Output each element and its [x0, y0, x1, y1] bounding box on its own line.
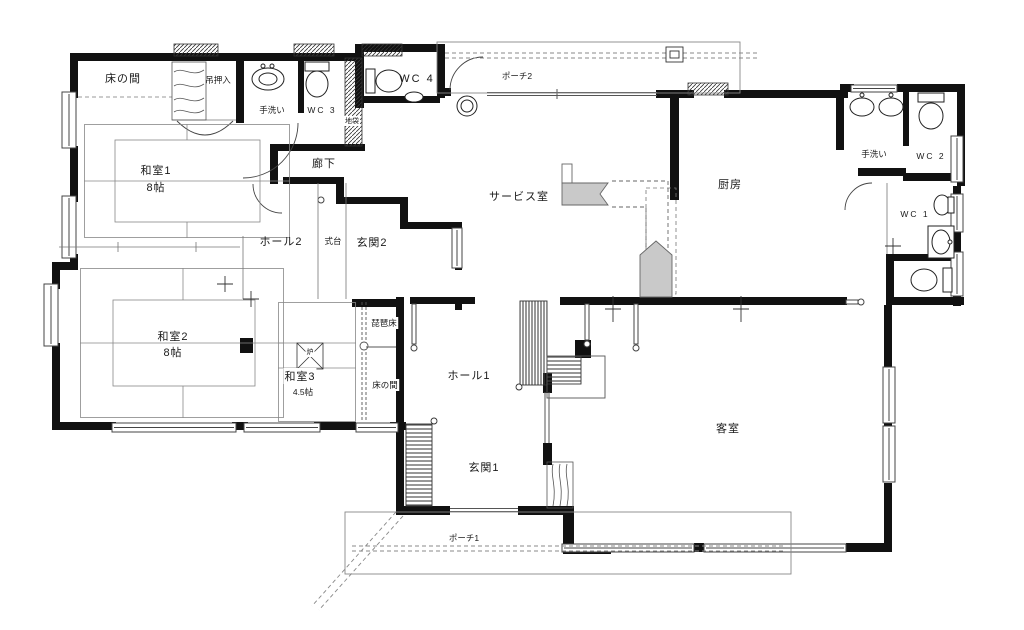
room-label-washitsu2: 和室2 [157, 328, 188, 344]
room-label-biwadoko: 琵琶床 [370, 317, 398, 329]
opening-tick-marks [217, 238, 901, 322]
room-label-washitsu3: 和室3 [283, 368, 316, 384]
room-size-washitsu3: 4.5帖 [292, 386, 314, 398]
room-label-kyakushitsu: 客室 [716, 420, 740, 436]
room-label-kitchen: 厨房 [718, 176, 742, 192]
room-label-tokonoma-c: 床の間 [371, 379, 399, 391]
porch1-outline [312, 512, 791, 610]
stair-main [516, 301, 605, 398]
room-label-service: サービス室 [489, 188, 549, 204]
sink-icon-wc1 [928, 226, 954, 258]
room-label-wc1: WC 1 [900, 209, 929, 219]
service-counter [562, 164, 672, 297]
room-label-tsurioshiire: 吊押入 [205, 74, 231, 86]
floor-plan: 床の間 吊押入 手洗い WC 3 地袋 WC 4 ポーチ2 廊下 和室1 8帖 … [0, 0, 1024, 630]
room-label-genkan2: 玄関2 [356, 234, 387, 250]
room-label-hall1: ホール1 [447, 367, 490, 383]
toilet-icon-wc2 [918, 93, 944, 129]
tatami-lines-washitsu3 [278, 303, 356, 422]
toilet-icon-wc1 [911, 268, 952, 292]
hearth-label-ro: 炉 [306, 347, 315, 357]
tatami-lines-washitsu1 [84, 124, 290, 238]
stair-genkan1 [406, 418, 437, 506]
room-label-wc2: WC 2 [916, 151, 945, 161]
room-label-genkan1: 玄関1 [468, 459, 499, 475]
room-label-porch1: ポーチ1 [449, 532, 479, 544]
room-label-jibukuro: 地袋 [344, 116, 360, 126]
room-label-wc3: WC 3 [307, 105, 336, 115]
room-label-tearai-nw: 手洗い [259, 104, 285, 116]
basin-icon-tearai-nw [252, 64, 284, 90]
floor-plan-drawing [0, 0, 1024, 630]
room-label-tearai-ne: 手洗い [861, 148, 887, 160]
walls [52, 44, 965, 554]
room-label-rouka: 廊下 [312, 155, 336, 171]
window-symbols [44, 85, 963, 552]
room-size-washitsu2: 8帖 [163, 344, 182, 360]
room-label-hall2: ホール2 [259, 233, 302, 249]
urinal-icon-wc1 [934, 195, 954, 215]
corner-sink-icon [405, 92, 423, 102]
basin-icons-tearai-ne [850, 93, 903, 116]
room-size-washitsu1: 8帖 [146, 179, 165, 195]
toilet-icon-wc3 [305, 62, 329, 97]
genkan-door-grain [547, 462, 573, 508]
closet-fusuma-pattern [172, 62, 206, 120]
room-label-tokonoma-nw: 床の間 [105, 70, 141, 86]
room-label-shikidai: 式台 [323, 235, 342, 247]
room-label-porch2: ポーチ2 [502, 70, 532, 82]
room-label-wc4: WC 4 [399, 73, 435, 85]
room-label-washitsu1: 和室1 [140, 162, 171, 178]
pot-decor-icon [457, 96, 477, 116]
